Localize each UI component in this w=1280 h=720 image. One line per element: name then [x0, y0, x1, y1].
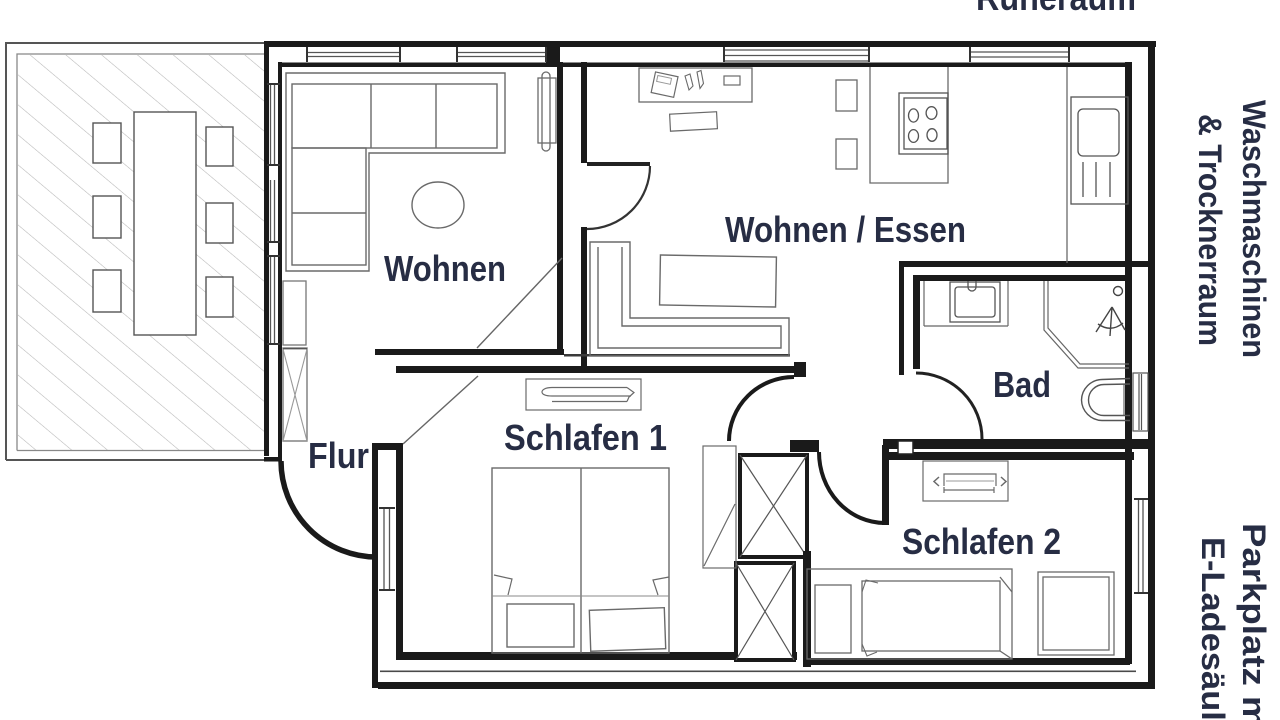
svg-text:Ruheraum: Ruheraum [976, 0, 1136, 18]
svg-text:E-Ladesäule: E-Ladesäule [1195, 537, 1231, 720]
svg-text:& Trocknerraum: & Trocknerraum [1192, 114, 1228, 346]
svg-text:Wohnen / Essen: Wohnen / Essen [725, 209, 966, 250]
svg-text:Flur: Flur [308, 435, 369, 476]
svg-text:Parkplatz mit: Parkplatz mit [1236, 523, 1272, 720]
svg-text:Bad: Bad [993, 364, 1051, 405]
svg-text:Schlafen 2: Schlafen 2 [902, 521, 1061, 562]
svg-text:Waschmaschinen: Waschmaschinen [1236, 100, 1272, 358]
svg-text:Schlafen 1: Schlafen 1 [504, 417, 667, 458]
svg-text:Wohnen: Wohnen [384, 248, 506, 289]
